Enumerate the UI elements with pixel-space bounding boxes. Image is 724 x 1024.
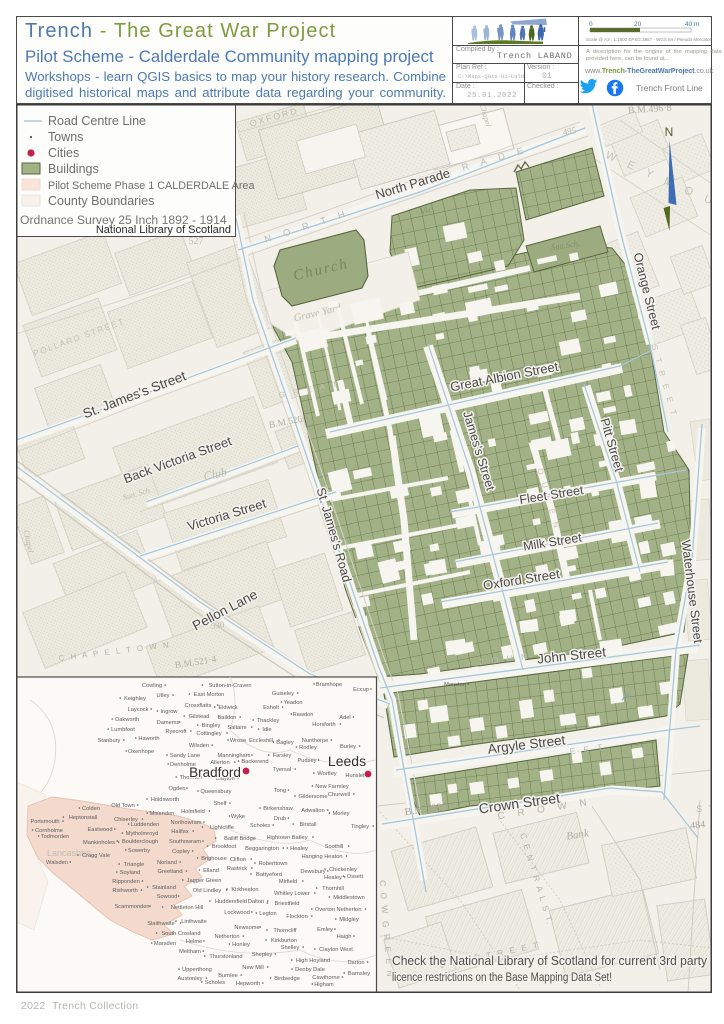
svg-text:Ossett: Ossett [347,874,364,880]
svg-text:Southowram: Southowram [169,839,201,845]
svg-text:Holmfield: Holmfield [181,809,205,815]
svg-text:Eccup: Eccup [353,687,369,693]
svg-text:Upperthong: Upperthong [182,967,212,973]
svg-text:Birstall: Birstall [299,822,316,828]
svg-text:Tong: Tong [274,788,286,794]
svg-text:Stanbury: Stanbury [98,738,121,744]
svg-text:Pudsey: Pudsey [298,758,317,764]
svg-text:Drub: Drub [274,816,286,822]
svg-text:Crossflatts: Crossflatts [185,703,212,709]
svg-text:Rodley: Rodley [299,745,317,751]
svg-text:Utley: Utley [157,693,170,699]
svg-text:Thorncliff: Thorncliff [273,928,297,934]
svg-text:Dalton: Dalton [248,899,264,905]
svg-text:Farsley: Farsley [273,753,292,759]
svg-text:Midgley: Midgley [339,917,359,923]
svg-text:Yeadon: Yeadon [283,700,302,706]
svg-text:Norland: Norland [157,860,177,866]
svg-text:Luddenden: Luddenden [131,822,159,828]
svg-text:S T: S T [696,804,712,814]
svg-text:Barnsley: Barnsley [348,971,370,977]
svg-text:Halifax: Halifax [171,829,189,835]
svg-text:Walsden: Walsden [46,860,68,866]
svg-text:Copley: Copley [172,849,190,855]
svg-text:Sowerby: Sowerby [128,848,150,854]
svg-text:Menston: Menston [444,682,466,688]
svg-text:Cottingley: Cottingley [196,731,221,737]
svg-text:Boulderclough: Boulderclough [122,839,158,845]
svg-text:484: 484 [690,819,706,832]
svg-text:Buildings: Buildings [48,162,99,176]
svg-text:Keighley: Keighley [124,696,146,702]
svg-text:Tingley: Tingley [351,824,369,830]
svg-text:Lightcliffe: Lightcliffe [210,825,234,831]
svg-text:Scammonden: Scammonden [114,904,149,910]
svg-text:Scholes: Scholes [250,823,270,829]
svg-text:Darton: Darton [347,960,364,966]
svg-text:Ingrow: Ingrow [160,709,178,715]
svg-text:Overton: Overton [315,907,335,913]
svg-text:Hanging Heaton: Hanging Heaton [301,854,342,860]
svg-text:Netherton: Netherton [337,907,362,913]
svg-text:Cities: Cities [48,146,79,160]
svg-text:Hepworth: Hepworth [236,981,260,987]
svg-text:Morley: Morley [332,811,349,817]
svg-text:National Library of Scotland: National Library of Scotland [96,224,231,236]
svg-text:Legton: Legton [259,911,276,917]
svg-text:Churwell: Churwell [328,792,350,798]
svg-text:Horsforth: Horsforth [312,722,335,728]
svg-text:Denby Dale: Denby Dale [295,967,325,973]
svg-text:Kirkburton: Kirkburton [271,938,297,944]
svg-text:Rishworth: Rishworth [112,888,137,894]
svg-text:Heptonstall: Heptonstall [69,815,97,821]
svg-text:Idle: Idle [262,727,271,733]
svg-text:Bagley: Bagley [276,740,294,746]
svg-text:High Hoyland: High Hoyland [296,958,330,964]
svg-text:New Mill: New Mill [242,965,264,971]
svg-text:Adwalton: Adwalton [301,808,324,814]
svg-text:Meltham: Meltham [179,949,201,955]
svg-text:Triangle: Triangle [124,862,144,868]
svg-text:Eastwood: Eastwood [88,827,113,833]
svg-text:Healey: Healey [290,846,308,852]
svg-text:Hightown Batley: Hightown Batley [266,835,307,841]
svg-text:Mirfield: Mirfield [279,879,297,885]
svg-text:Thurstonland: Thurstonland [209,954,242,960]
svg-text:Road Centre Line: Road Centre Line [48,114,146,128]
svg-text:0: 0 [589,21,593,28]
svg-text:Huddersfield: Huddersfield [215,899,247,905]
svg-text:licence restrictions on the Ba: licence restrictions on the Base Mapping… [392,972,612,984]
svg-text:Bradford: Bradford [189,765,241,780]
svg-text:Oakworth: Oakworth [115,717,139,723]
svg-text:Sowood: Sowood [157,894,178,900]
svg-text:Haworth: Haworth [138,736,159,742]
svg-text:Briestfield: Briestfield [275,901,300,907]
svg-text:Bramhope: Bramhope [316,682,342,688]
svg-text:Birdsedge: Birdsedge [274,976,300,982]
svg-text:Nettleton Hill: Nettleton Hill [171,905,203,911]
svg-text:Greetland: Greetland [158,869,183,875]
svg-text:Pilot Scheme Phase 1 CALDERDAL: Pilot Scheme Phase 1 CALDERDALE Area [48,180,254,192]
svg-text:Check the National Library: Check the National Library of Scotland f… [392,954,708,968]
svg-text:Laycock: Laycock [128,707,149,713]
svg-text:South Crosland: South Crosland [161,931,200,937]
svg-text:N: N [665,125,674,139]
svg-text:40 m: 40 m [685,21,699,28]
svg-text:East Morton: East Morton [194,692,225,698]
svg-text:Holdsworth: Holdsworth [151,797,179,803]
svg-text:Whitley Lower: Whitley Lower [274,891,310,897]
svg-text:Damems: Damems [157,720,180,726]
svg-text:Slaithwaite: Slaithwaite [147,921,175,927]
svg-text:Jagger Green: Jagger Green [187,878,222,884]
svg-text:Haigh: Haigh [337,934,352,940]
svg-text:Cowling: Cowling [142,683,162,689]
svg-text:Elland: Elland [203,868,219,874]
svg-text:Ogden: Ogden [168,786,185,792]
svg-text:Portsmouth: Portsmouth [30,819,59,825]
svg-text:527: 527 [189,236,204,247]
svg-text:Burley: Burley [340,744,356,750]
svg-text:Shelf: Shelf [214,801,227,807]
svg-text:Saltaire: Saltaire [227,725,246,731]
svg-text:Beggarington: Beggarington [245,846,279,852]
svg-text:Leeds: Leeds [328,753,366,769]
svg-text:Clayton West: Clayton West [319,947,353,953]
svg-text:Austonley: Austonley [178,976,203,982]
svg-text:Mixenden: Mixenden [150,811,175,817]
svg-text:New Farmley: New Farmley [315,784,349,790]
svg-text:Towns: Towns [48,130,83,144]
svg-text:Gilstead: Gilstead [189,714,210,720]
svg-text:Healey: Healey [324,875,342,881]
svg-text:Honley: Honley [232,942,250,948]
svg-text:Emley: Emley [317,927,333,933]
svg-text:Wilsden: Wilsden [189,743,209,749]
svg-text:Wyke: Wyke [231,814,245,820]
svg-text:Cragg Vale: Cragg Vale [82,853,110,859]
svg-text:Scale @ A3 : 1:1500 EPSG:3: Scale @ A3 : 1:1500 EPSG:3857 - WGS 84 /… [586,37,711,42]
svg-text:Brighouse: Brighouse [201,856,227,862]
svg-text:Nunthorpe: Nunthorpe [302,738,329,744]
svg-text:Todmorden: Todmorden [41,834,69,840]
svg-text:Old Town: Old Town [111,803,135,809]
svg-text:Wortley: Wortley [317,771,336,777]
svg-text:Colden: Colden [82,806,100,812]
svg-text:Lockwood: Lockwood [224,910,250,916]
svg-text:Flockton: Flockton [286,914,308,920]
svg-text:Ryecroft: Ryecroft [165,729,187,735]
svg-text:Brookfoot: Brookfoot [212,844,237,850]
svg-text:Sutton-in-Craven: Sutton-in-Craven [209,683,252,689]
svg-text:Adel: Adel [339,715,350,721]
svg-text:Queensbury: Queensbury [201,789,232,795]
svg-text:Rastrick: Rastrick [227,866,248,872]
svg-text:20: 20 [634,21,642,28]
svg-text:Backerend: Backerend [241,759,268,765]
svg-text:Ripponden: Ripponden [112,879,140,885]
svg-text:Soothill: Soothill [325,844,344,850]
svg-text:Roberttown: Roberttown [258,861,287,867]
svg-text:Scholes: Scholes [205,980,225,986]
svg-text:Soyland: Soyland [120,870,141,876]
svg-text:Old Lindley: Old Lindley [193,888,222,894]
svg-text:Kirkheaton: Kirkheaton [231,887,258,893]
svg-text:Baildon: Baildon [218,715,237,721]
svg-text:Stainland: Stainland [152,885,176,891]
svg-text:Netherton: Netherton [215,934,240,940]
svg-text:Rawdon: Rawdon [293,712,314,718]
svg-text:Esholt: Esholt [263,705,279,711]
svg-text:Birkenshaw: Birkenshaw [263,806,293,812]
svg-text:Thornhill: Thornhill [322,886,344,892]
svg-text:Clifton: Clifton [230,857,246,863]
svg-text:Guiseley: Guiseley [272,691,294,697]
svg-text:Bingley: Bingley [202,723,221,729]
svg-text:Lumbfoot: Lumbfoot [111,727,135,733]
svg-text:Shelley: Shelley [281,945,300,951]
svg-text:Cawthorne: Cawthorne [312,975,340,981]
svg-text:Linthwaite: Linthwaite [181,919,207,925]
svg-text:Marsden: Marsden [154,941,176,947]
svg-text:Eldwick: Eldwick [218,705,237,711]
svg-text:Helme: Helme [186,939,202,945]
svg-text:Higham: Higham [314,982,334,988]
svg-text:Mankinholes: Mankinholes [83,840,115,846]
svg-text:Wrose: Wrose [230,738,246,744]
svg-text:Middlestown: Middlestown [333,895,365,901]
svg-text:Shepley: Shepley [252,952,273,958]
svg-text:Tyersal: Tyersal [273,767,291,773]
svg-text:Chickenley: Chickenley [329,867,357,873]
svg-text:Burnlee: Burnlee [218,973,238,979]
svg-text:Hunslet: Hunslet [345,773,365,779]
svg-text:Battyeford: Battyeford [256,872,282,878]
svg-text:Eccleshill: Eccleshill [249,738,273,744]
svg-text:Thackley: Thackley [257,718,280,724]
svg-text:County Boundaries: County Boundaries [48,194,154,208]
svg-text:Mytholmroyd: Mytholmroyd [126,831,159,837]
svg-text:Sandy Lane: Sandy Lane [170,753,200,759]
svg-text:Bailiff Bridge: Bailiff Bridge [224,836,256,842]
svg-text:Newsome: Newsome [234,925,259,931]
svg-text:Northowram: Northowram [171,820,202,826]
svg-text:Oxenhope: Oxenhope [128,749,154,755]
svg-text:Dewsbury: Dewsbury [300,869,325,875]
svg-text:Gildersome: Gildersome [298,794,327,800]
